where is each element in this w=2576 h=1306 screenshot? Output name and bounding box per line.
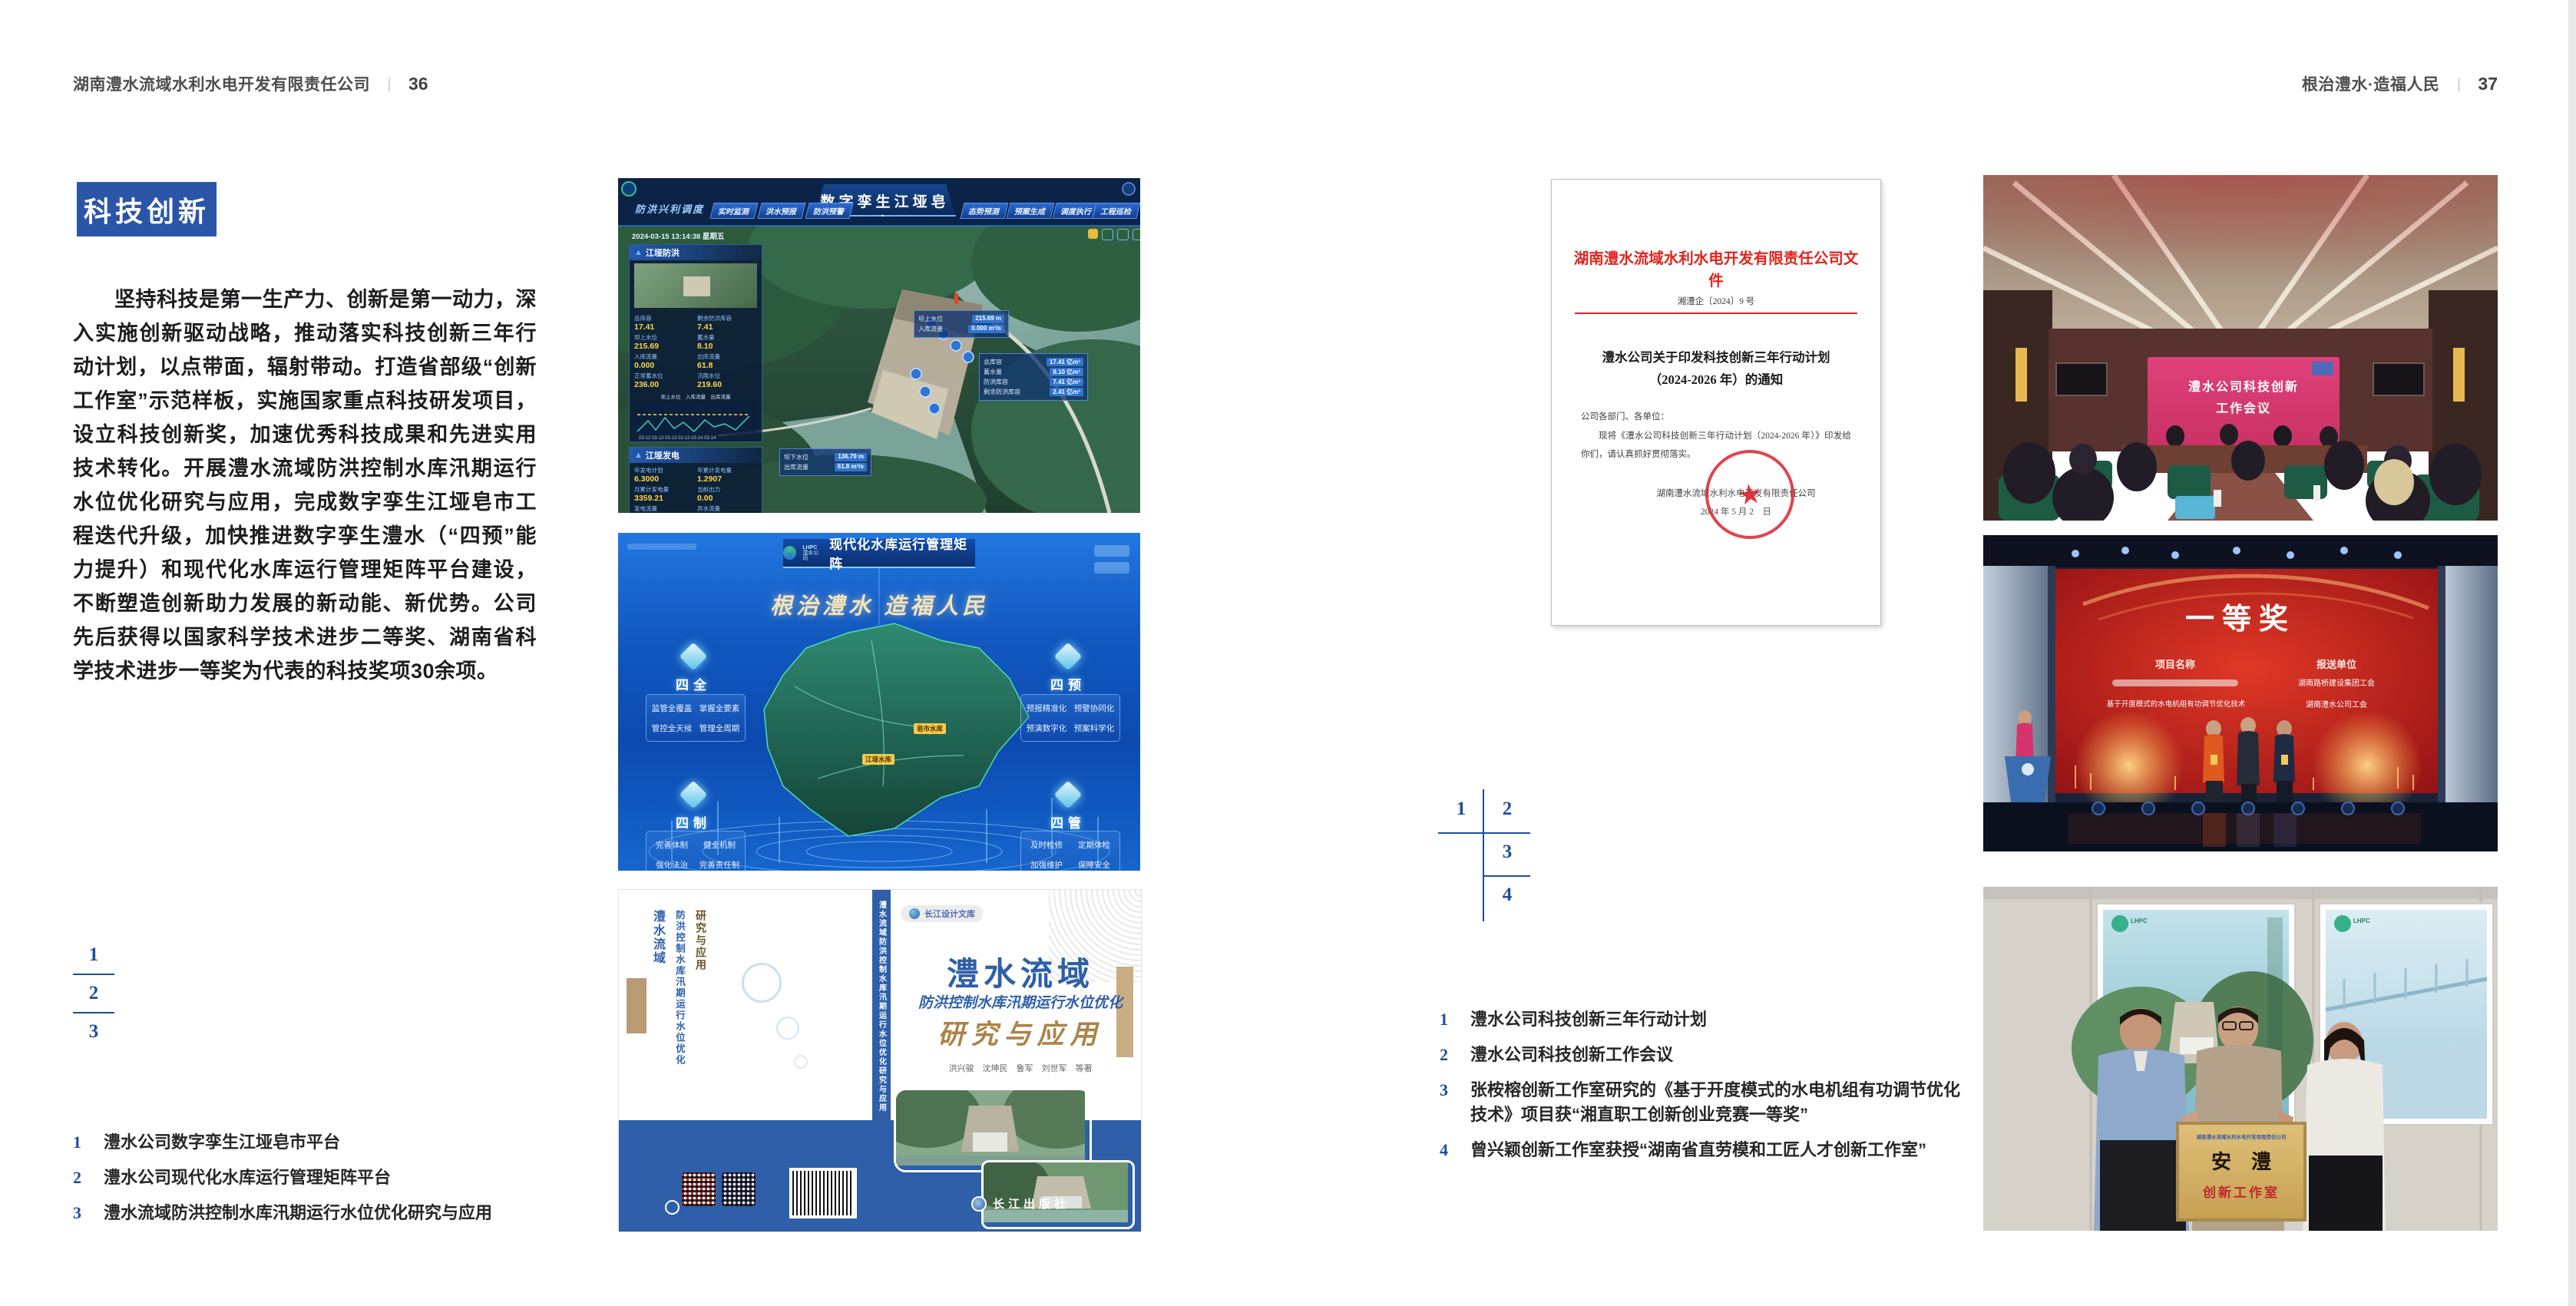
tip-value: 136.79 m xyxy=(835,453,867,461)
dt-flood-stats: 总库容17.41 剩余防洪库容7.41 坝上水位215.69 蓄水量8.10 入… xyxy=(630,311,762,392)
book-authors: 洪兴骏 沈坤民 鲁军 刘世军 等著 xyxy=(917,1062,1124,1074)
index-divider-line xyxy=(73,974,114,975)
left-page-number: 36 xyxy=(408,74,428,94)
doc-salutation: 公司各部门、各单位： xyxy=(1581,410,1851,422)
doc-title-line1: 澧水公司关于印发科技创新三年行动计划 xyxy=(1567,347,1865,369)
mx-item: 健全机制 xyxy=(703,839,736,851)
tip-label: 剩余防洪库容 xyxy=(984,388,1020,396)
award-project2: 基于开度模式的水电机组有功调节优化技术 xyxy=(2095,698,2257,709)
book-title-region: 澧水流域 xyxy=(917,948,1124,995)
stat-label: 剩余防洪库容 xyxy=(697,314,757,322)
figure-index-number: 1 xyxy=(1450,798,1473,820)
tip-label: 总库容 xyxy=(984,358,1002,366)
sail-icon: ▲ xyxy=(634,451,643,460)
stat-label: 弃水流量 xyxy=(697,504,757,513)
award-col-org: 报送单位 xyxy=(2267,656,2406,671)
plaque-company-line: 湖南澧水流域水利水电开发有限责任公司 xyxy=(2184,1132,2298,1140)
award-org2: 湖南澧水公司工会 xyxy=(2267,698,2406,709)
publisher-block-back xyxy=(665,1200,680,1215)
stat-value: 17.41 xyxy=(634,322,694,332)
stat-label: 当前出力 xyxy=(697,485,757,494)
caption-row: 3 张桉榕创新工作室研究的《基于开度模式的水电机组有功调节优化技术》项目获“湘直… xyxy=(1440,1078,1962,1127)
tip-value: 2.41 亿m³ xyxy=(1050,388,1083,396)
magazine-spread: 湖南澧水流域水利水电开发有限责任公司 ｜ 36 科技创新 坚持科技是第一生产力、… xyxy=(0,0,2576,1306)
figure-book-cover: 澧水流域 防洪控制水库汛期运行水位优化 研究与应用 澧水流域防洪控制水库汛期运行… xyxy=(618,889,1142,1232)
left-header-company: 湖南澧水流域水利水电开发有限责任公司 xyxy=(73,72,370,95)
tip-value: 7.41 亿m³ xyxy=(1050,378,1083,386)
caption-number: 3 xyxy=(1440,1078,1458,1127)
right-page-number: 37 xyxy=(2478,74,2498,94)
mx-item: 及时检修 xyxy=(1030,839,1063,851)
stat-label: 月累计发电量 xyxy=(634,485,694,494)
caption-row: 1 澧水公司科技创新三年行动计划 xyxy=(1440,1007,1977,1032)
water-droplet xyxy=(742,963,782,1003)
stat-value: 3359.21 xyxy=(634,494,694,503)
dt-tab-realtime: 实时监测 xyxy=(709,203,758,219)
mx-group-name: 四预 xyxy=(1020,674,1116,693)
figure-index-number: 3 xyxy=(1496,841,1519,863)
dt-flood-panel-title: 江垭防洪 xyxy=(646,246,680,259)
figure-index-number: 4 xyxy=(1496,884,1519,906)
mx-group-name: 四管 xyxy=(1020,812,1116,832)
tip-value: 17.41 亿m³ xyxy=(1047,358,1083,366)
mx-group-panel: 监管全覆盖 掌握全要素 管控全天候 管理全周期 xyxy=(646,694,746,742)
caption-text: 张桉榕创新工作室研究的《基于开度模式的水电机组有功调节优化技术》项目获“湘直职工… xyxy=(1470,1078,1962,1127)
body-paragraph: 坚持科技是第一生产力、创新是第一动力，深入实施创新驱动战略，推动落实科技创新三年… xyxy=(73,283,537,688)
stat-label: 年发电计划 xyxy=(634,466,694,474)
changjiang-press-logo-icon xyxy=(971,1196,987,1212)
mx-item: 完善体制 xyxy=(656,839,688,851)
tip-value: 8.10 亿m³ xyxy=(1050,368,1083,376)
stat-value: 0.000 xyxy=(634,361,694,370)
right-header-slogan: 根治澧水·造福人民 xyxy=(2302,72,2440,95)
doc-red-header: 湖南澧水流域水利水电开发有限责任公司文件 xyxy=(1567,246,1865,290)
photo-award-ceremony: 一等奖 项目名称 报送单位 湖南路桥建设集团工会 基于开度模式的水电机组有功调节… xyxy=(1983,535,2498,851)
mx-item: 完善责任制 xyxy=(699,859,740,871)
book-back-title-region: 澧水流域 xyxy=(648,910,666,1066)
poster-logo-label: LHPC xyxy=(2353,918,2399,924)
caption-list-left: 1 澧水公司数字孪生江垭皂市平台 2 澧水公司现代化水库运行管理矩阵平台 3 澧… xyxy=(73,1130,568,1236)
mx-group-name: 四制 xyxy=(646,812,741,832)
mx-item: 管理全周期 xyxy=(699,722,740,734)
index-grid-line xyxy=(1483,875,1530,877)
left-header-divider: ｜ xyxy=(382,74,396,94)
stat-value: 219.60 xyxy=(697,380,757,389)
dt-water-level-chart: 03-12 03-13 03-13 03-13 03-14 03-14 xyxy=(634,401,757,441)
tip-label: 出库流量 xyxy=(784,463,809,471)
dt-tooltip-upstream: 坝上水位215.69 m 入库流量0.000 m³/s xyxy=(914,310,1009,338)
figure-index-left: 1 2 3 xyxy=(73,944,114,1043)
mx-group-panel: 及时检修 定期体检 加强维护 保障安全 xyxy=(1020,831,1120,871)
plaque-name: 安 澧 xyxy=(2184,1146,2298,1175)
doc-body: 现将《澧水公司科技创新三年行动计划（2024-2026 年）》印发给你们，请认真… xyxy=(1581,427,1851,464)
caption-number: 2 xyxy=(73,1165,91,1190)
qr-code xyxy=(722,1172,756,1206)
mx-group-name: 四全 xyxy=(646,674,741,693)
book-series-chip: 长江设计文库 xyxy=(901,905,983,922)
page-edge-shadow xyxy=(2568,0,2576,1306)
meeting-screen-line1: 澧水公司科技创新 xyxy=(2155,376,2332,395)
seal-star-icon: ★ xyxy=(1735,477,1764,512)
stat-value: 0.00 xyxy=(697,494,757,503)
stat-label: 正常蓄水位 xyxy=(634,372,694,380)
caption-text: 曾兴颖创新工作室获授“湖南省直劳模和工匠人才创新工作室” xyxy=(1470,1138,1977,1162)
right-page-header: 根治澧水·造福人民 ｜ 37 xyxy=(2302,72,2498,95)
caption-number: 2 xyxy=(1440,1043,1458,1067)
stat-label: 总库容 xyxy=(634,314,694,322)
mx-item: 定期体检 xyxy=(1078,839,1110,851)
book-spine: 澧水流域防洪控制水库汛期运行水位优化研究与应用 xyxy=(872,890,891,1232)
tip-label: 入库流量 xyxy=(918,325,943,333)
dam-thumbnail xyxy=(683,276,710,296)
index-grid-line xyxy=(1438,832,1530,834)
map-marker-jiangya: 江垭水库 xyxy=(862,754,894,765)
stat-label: 汛限水位 xyxy=(697,372,757,380)
dt-tab-situation: 态势预测 xyxy=(960,203,1008,219)
tip-value: 215.69 m xyxy=(972,315,1004,323)
meeting-scene xyxy=(1983,175,2498,521)
dt-datetime: 2024-03-15 13:14:38 星期五 xyxy=(632,230,724,241)
dt-panel-power: ▲ 江垭发电 年发电计划6.3000 年累计发电量1.2907 月累计发电量33… xyxy=(629,447,762,513)
tip-label: 坝上水位 xyxy=(918,315,943,323)
caption-row: 4 曾兴颖创新工作室获授“湖南省直劳模和工匠人才创新工作室” xyxy=(1440,1138,1977,1162)
caption-text: 澧水公司数字孪生江垭皂市平台 xyxy=(104,1130,568,1155)
mx-item: 预演数字化 xyxy=(1027,722,1067,734)
photo-innovation-meeting: 澧水公司科技创新 工作会议 xyxy=(1983,175,2498,521)
dt-tab-inspection: 工程巡检 xyxy=(1092,203,1140,219)
figure-index-number: 1 xyxy=(73,944,114,966)
figure-digital-twin-platform: 数字孪生江垭皂市 防洪兴利调度 实时监测 洪水预报 防洪预警 态势预测 预案生成… xyxy=(618,178,1140,513)
caption-number: 1 xyxy=(73,1130,91,1155)
photo-studio-plaque: 湖南澧水流域水利水电开发有限责任公司 安 澧 创新工作室 LHPC LHPC xyxy=(1983,887,2498,1231)
mx-item: 掌握全要素 xyxy=(699,703,740,714)
stat-label: 出库流量 xyxy=(697,352,757,361)
water-droplet xyxy=(794,1055,808,1069)
user-icon xyxy=(1088,229,1098,239)
index-divider-line xyxy=(73,1012,114,1013)
mx-slogan: 根治澧水 造福人民 xyxy=(764,588,994,620)
doc-title-line2: （2024-2026 年）的通知 xyxy=(1567,369,1865,392)
stat-value: 215.69 xyxy=(634,342,694,351)
mx-item: 保障安全 xyxy=(1078,859,1110,871)
barcode xyxy=(789,1168,857,1218)
caption-row: 2 澧水公司科技创新工作会议 xyxy=(1440,1043,1977,1067)
tip-label: 蓄水量 xyxy=(984,368,1002,376)
index-grid-line xyxy=(1483,789,1484,921)
layers-icon xyxy=(1102,229,1113,240)
book-title-sub: 防洪控制水库汛期运行水位优化 xyxy=(909,991,1132,1012)
dt-tooltip-capacity: 总库容17.41 亿m³ 蓄水量8.10 亿m³ 防洪库容7.41 亿m³ 剩余… xyxy=(979,353,1088,401)
mx-logo-abbr: LHPC xyxy=(802,545,823,551)
caption-row: 1 澧水公司数字孪生江垭皂市平台 xyxy=(73,1130,568,1155)
book-title-tail: 研究与应用 xyxy=(917,1013,1124,1052)
award-scene xyxy=(1983,535,2498,851)
caption-text: 澧水公司科技创新工作会议 xyxy=(1470,1043,1977,1067)
dt-tab-warning: 防洪预警 xyxy=(805,203,853,219)
figure-official-document: 湖南澧水流域水利水电开发有限责任公司文件 湘澧企〔2024〕9 号 澧水公司关于… xyxy=(1551,179,1881,626)
figure-index-number: 2 xyxy=(1496,798,1519,820)
stat-value: 8.10 xyxy=(697,342,757,351)
mx-title: 现代化水库运行管理矩阵 xyxy=(829,534,975,572)
dt-panel-flood: ▲ 江垭防洪 总库容17.41 剩余防洪库容7.41 坝上水位215.69 蓄水… xyxy=(629,244,762,442)
book-back-title: 澧水流域 防洪控制水库汛期运行水位优化 研究与应用 xyxy=(648,910,709,1066)
stat-value: 236.00 xyxy=(634,380,694,389)
doc-red-rule xyxy=(1575,312,1857,314)
poster-logo-label: LHPC xyxy=(2131,918,2177,924)
stat-label: 坝上水位 xyxy=(634,333,694,342)
mx-logo-name: 澧水公司 xyxy=(802,551,823,561)
caption-text: 澧水公司科技创新三年行动计划 xyxy=(1470,1007,1977,1032)
dt-toolbar-icons xyxy=(1088,229,1140,240)
stat-value: 1.2907 xyxy=(697,474,757,484)
book-back-title-sub: 防洪控制水库汛期运行水位优化 xyxy=(673,910,687,1066)
publisher-block: 长江出版社 xyxy=(917,1195,1124,1212)
lhpc-logo-icon xyxy=(783,546,796,560)
mx-item: 预案科学化 xyxy=(1074,722,1115,734)
settings-icon xyxy=(1133,229,1140,240)
changjiang-design-logo-icon xyxy=(909,908,920,919)
locate-icon xyxy=(1117,229,1129,240)
stat-value: 7.41 xyxy=(697,322,757,332)
caption-row: 2 澧水公司现代化水库运行管理矩阵平台 xyxy=(73,1165,568,1190)
stat-label: 年累计发电量 xyxy=(697,466,757,474)
stat-label: 入库流量 xyxy=(634,352,694,361)
tip-value: 0.000 m³/s xyxy=(968,325,1004,333)
caption-number: 1 xyxy=(1440,1007,1458,1032)
changjiang-press-logo-icon xyxy=(665,1200,680,1215)
meeting-screen-line2: 工作会议 xyxy=(2155,398,2332,416)
dt-power-stats: 年发电计划6.3000 年累计发电量1.2907 月累计发电量3359.21 当… xyxy=(630,463,762,513)
book-series-label: 长江设计文库 xyxy=(924,908,975,920)
dt-chart-x-labels: 03-12 03-13 03-13 03-13 03-14 03-14 xyxy=(639,436,716,441)
book-back-accent xyxy=(627,978,646,1033)
section-title-box: 科技创新 xyxy=(77,182,217,236)
caption-number: 3 xyxy=(73,1201,91,1225)
caption-text: 澧水流域防洪控制水库汛期运行水位优化研究与应用 xyxy=(104,1201,568,1225)
figure-index-number: 3 xyxy=(73,1021,114,1043)
mx-group-panel: 预报精准化 预警协同化 预演数字化 预案科学化 xyxy=(1020,694,1120,742)
stat-value: 61.8 xyxy=(697,361,757,370)
plaque-scene xyxy=(1983,887,2498,1231)
mx-item: 预警协同化 xyxy=(1074,703,1115,714)
award-org1: 湖南路桥建设集团工会 xyxy=(2267,676,2406,688)
tip-label: 防洪库容 xyxy=(984,378,1008,386)
dt-tooltip-downstream: 坝下水位136.79 m 出库流量61.8 m³/s xyxy=(779,448,871,476)
figure-matrix-platform: LHPC 澧水公司 现代化水库运行管理矩阵 根治澧水 造福人民 四全 监管全覆盖… xyxy=(618,533,1140,871)
mx-item: 管控全天候 xyxy=(652,722,693,734)
book-spine-title: 澧水流域防洪控制水库汛期运行水位优化研究与应用 xyxy=(876,901,888,1232)
stat-label: 蓄水量 xyxy=(697,333,757,342)
stat-label: 发电流量 xyxy=(634,504,694,513)
qr-code xyxy=(682,1172,716,1206)
caption-list-right: 1 澧水公司科技创新三年行动计划 2 澧水公司科技创新工作会议 3 张桉榕创新工… xyxy=(1440,1007,1977,1172)
left-page-header: 湖南澧水流域水利水电开发有限责任公司 ｜ 36 xyxy=(73,72,428,95)
section-title: 科技创新 xyxy=(84,190,210,230)
stat-value: 6.3000 xyxy=(634,474,694,484)
dt-module-label: 防洪兴利调度 xyxy=(635,201,704,216)
mx-header: LHPC 澧水公司 现代化水库运行管理矩阵 xyxy=(783,539,975,568)
caption-row: 3 澧水流域防洪控制水库汛期运行水位优化研究与应用 xyxy=(73,1201,568,1225)
figure-index-number: 2 xyxy=(73,983,114,1004)
award-col-project: 项目名称 xyxy=(2106,656,2244,671)
mx-group-panel: 完善体制 健全机制 强化法治 完善责任制 xyxy=(646,831,746,871)
mx-item: 强化法治 xyxy=(656,859,688,871)
caption-text: 澧水公司现代化水库运行管理矩阵平台 xyxy=(104,1165,568,1190)
dt-tab-forecast: 洪水预报 xyxy=(757,203,805,219)
dt-chart-legend: 坝上水位 入库流量 出库流量 xyxy=(630,392,762,400)
book-cover-photo-small xyxy=(981,1160,1135,1229)
mx-item: 加强维护 xyxy=(1030,859,1063,871)
publisher-name: 长江出版社 xyxy=(993,1195,1070,1212)
sail-icon: ▲ xyxy=(634,248,643,257)
dt-power-panel-title: 江垭发电 xyxy=(646,449,680,461)
caption-number: 4 xyxy=(1440,1138,1458,1162)
tip-value: 61.8 m³/s xyxy=(835,463,867,471)
book-back-title-tail: 研究与应用 xyxy=(693,910,709,1066)
award-project1-blurred-text xyxy=(2112,679,2238,686)
doc-number: 湘澧企〔2024〕9 号 xyxy=(1567,295,1865,307)
award-grade-title: 一等奖 xyxy=(2125,595,2356,637)
water-droplet xyxy=(776,1017,799,1040)
mx-item: 预报精准化 xyxy=(1027,703,1067,714)
map-marker-zaoshi: 皂市水库 xyxy=(914,723,946,734)
plaque-subtitle: 创新工作室 xyxy=(2184,1182,2298,1201)
dt-flood-photo xyxy=(634,263,757,308)
tip-label: 坝下水位 xyxy=(784,453,809,461)
right-header-divider: ｜ xyxy=(2452,74,2465,94)
dt-tab-plan: 预案生成 xyxy=(1006,203,1054,219)
mx-item: 监管全覆盖 xyxy=(652,703,693,714)
